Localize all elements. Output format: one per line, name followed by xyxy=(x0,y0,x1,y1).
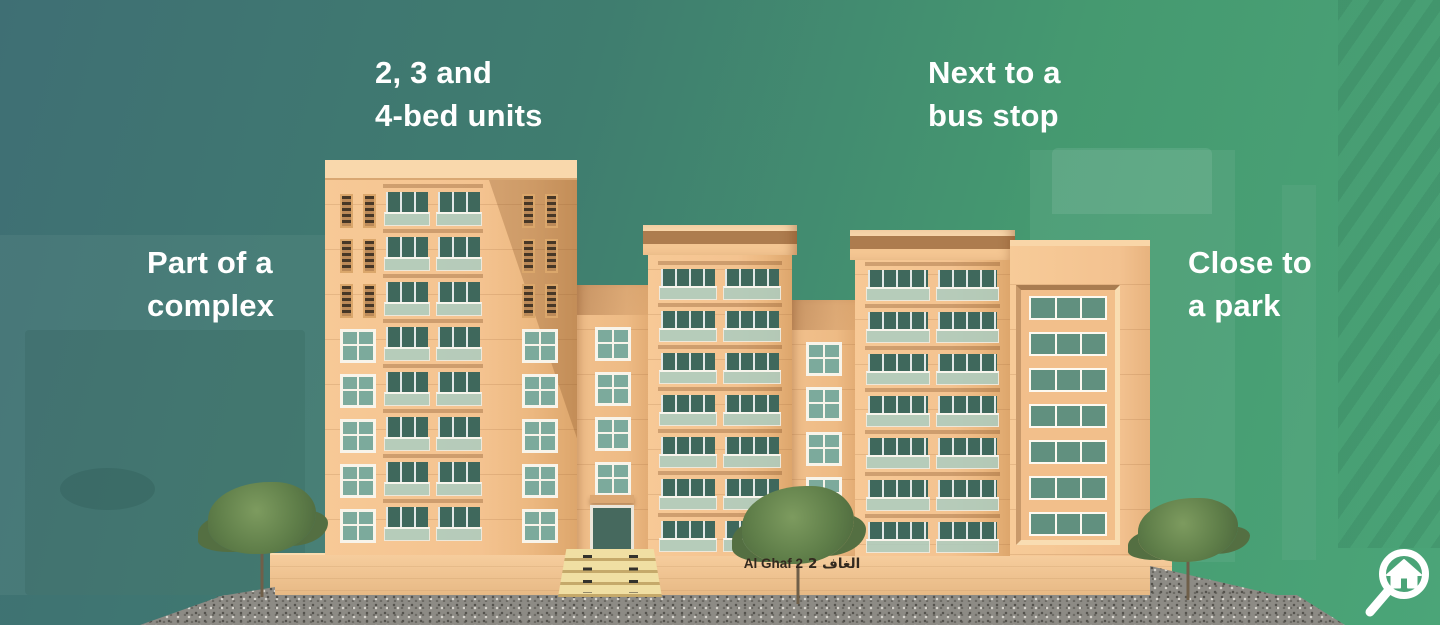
balcony-railing xyxy=(936,329,1000,343)
balcony-glazing xyxy=(438,507,480,527)
window xyxy=(595,327,631,361)
balcony-glazing xyxy=(868,396,928,413)
balcony-glazing xyxy=(386,462,428,482)
window-row xyxy=(593,366,633,411)
balcony-railing xyxy=(723,454,781,468)
window-row xyxy=(804,426,844,471)
balcony xyxy=(866,437,930,470)
window-row xyxy=(517,368,563,413)
balcony xyxy=(866,311,930,344)
window-row xyxy=(517,503,563,548)
feature-bus-stop-label: Next to a bus stop xyxy=(928,52,1061,138)
balcony-glazing xyxy=(938,354,998,371)
balcony-glazing xyxy=(386,327,428,347)
wing-cast-shadow xyxy=(792,300,855,330)
balcony-glazing xyxy=(938,522,998,539)
slatted-window xyxy=(363,194,376,228)
strip-window xyxy=(1029,476,1107,500)
window-row xyxy=(335,323,381,368)
wing-cast-shadow xyxy=(577,285,648,315)
strip-window xyxy=(1029,440,1107,464)
slatted-window xyxy=(340,284,353,318)
window-row xyxy=(517,458,563,503)
balcony-floor xyxy=(658,387,782,429)
connecting-wing-left xyxy=(577,285,648,555)
strip-window xyxy=(1029,404,1107,428)
balcony xyxy=(384,461,430,497)
balcony-railing xyxy=(936,371,1000,385)
balcony-glazing xyxy=(438,462,480,482)
balcony-railing xyxy=(723,370,781,384)
balcony xyxy=(659,310,717,343)
balcony-railing xyxy=(723,328,781,342)
balcony-railing xyxy=(436,257,482,271)
window xyxy=(806,342,842,376)
balcony-railing xyxy=(436,437,482,451)
balcony xyxy=(936,311,1000,344)
balcony-railing xyxy=(659,412,717,426)
balcony-glazing xyxy=(938,480,998,497)
balcony-railing xyxy=(436,527,482,541)
window-row xyxy=(593,411,633,456)
strip-window-row xyxy=(1021,434,1115,470)
balcony-floor xyxy=(658,303,782,345)
balcony xyxy=(936,395,1000,428)
balcony xyxy=(866,521,930,554)
balcony xyxy=(866,353,930,386)
balcony-glazing xyxy=(661,437,715,454)
balcony xyxy=(866,269,930,302)
balcony-glazing xyxy=(438,237,480,257)
strip-window xyxy=(1029,368,1107,392)
balcony-floor xyxy=(383,499,483,544)
balcony-floor xyxy=(383,409,483,454)
window xyxy=(340,374,376,408)
balcony-floor xyxy=(658,345,782,387)
balcony xyxy=(936,353,1000,386)
ghost-chevron-tower-silhouette xyxy=(1338,0,1440,548)
slatted-window-pair xyxy=(335,233,381,278)
infographic-scene: 2, 3 and 4-bed units Next to a bus stop … xyxy=(0,0,1440,625)
balcony xyxy=(436,416,482,452)
window-row xyxy=(335,413,381,458)
balcony-railing xyxy=(866,371,930,385)
balcony-railing xyxy=(384,212,430,226)
building-entrance xyxy=(590,495,634,555)
balcony xyxy=(436,461,482,497)
balcony-glazing xyxy=(661,395,715,412)
flat-section-parapet xyxy=(1010,240,1150,246)
slatted-window xyxy=(340,194,353,228)
window xyxy=(340,329,376,363)
window xyxy=(522,464,558,498)
balcony xyxy=(936,269,1000,302)
balcony xyxy=(384,191,430,227)
balcony-floor xyxy=(383,184,483,229)
balcony xyxy=(723,268,781,301)
balcony xyxy=(384,326,430,362)
balcony-railing xyxy=(436,392,482,406)
feature-complex-label: Part of a complex xyxy=(147,242,274,328)
balcony xyxy=(384,236,430,272)
balcony-railing xyxy=(384,437,430,451)
balcony-glazing xyxy=(386,372,428,392)
balcony-glazing xyxy=(868,522,928,539)
balcony-floor xyxy=(383,364,483,409)
balcony-glazing xyxy=(725,437,779,454)
balcony-glazing xyxy=(725,311,779,328)
tree-canopy xyxy=(1138,498,1238,562)
strip-window-row xyxy=(1021,398,1115,434)
balcony-floor xyxy=(658,429,782,471)
window xyxy=(340,464,376,498)
magnifier-house-logo-icon xyxy=(1360,546,1436,624)
window-row xyxy=(335,368,381,413)
strip-window-row xyxy=(1021,362,1115,398)
strip-window-row xyxy=(1021,470,1115,506)
balcony-glazing xyxy=(938,396,998,413)
balcony-railing xyxy=(384,257,430,271)
tree-middle xyxy=(742,486,854,606)
balcony-glazing xyxy=(386,282,428,302)
building-name-label: Al Ghaf 2الغاف 2 xyxy=(712,556,892,572)
slatted-window xyxy=(363,239,376,273)
balcony-glazing xyxy=(386,192,428,212)
balcony-glazing xyxy=(438,372,480,392)
balcony xyxy=(659,436,717,469)
balcony-glazing xyxy=(661,479,715,496)
balcony-railing xyxy=(659,454,717,468)
balcony-railing xyxy=(866,455,930,469)
balcony-railing xyxy=(659,286,717,300)
balcony-railing xyxy=(936,455,1000,469)
middle-tower-parapet-cap xyxy=(643,225,797,255)
balcony-railing xyxy=(866,497,930,511)
balcony xyxy=(659,268,717,301)
entrance-awning xyxy=(590,495,634,503)
balcony xyxy=(436,281,482,317)
balcony-railing xyxy=(436,347,482,361)
tree-canopy xyxy=(742,486,854,564)
balcony xyxy=(384,371,430,407)
balcony xyxy=(436,371,482,407)
balcony xyxy=(384,416,430,452)
left-tower-window-column-left xyxy=(335,188,381,548)
balcony xyxy=(936,521,1000,554)
balcony-railing xyxy=(936,497,1000,511)
strip-window-row xyxy=(1021,326,1115,362)
window xyxy=(340,419,376,453)
right-tower-balcony-section xyxy=(855,230,1010,556)
window xyxy=(340,509,376,543)
balcony-glazing xyxy=(438,192,480,212)
balcony xyxy=(936,479,1000,512)
window-row xyxy=(517,323,563,368)
balcony-railing xyxy=(436,212,482,226)
window xyxy=(806,387,842,421)
balcony-railing xyxy=(659,496,717,510)
slatted-window-pair xyxy=(335,278,381,323)
right-tower-flat-section xyxy=(1010,240,1150,556)
balcony-glazing xyxy=(438,417,480,437)
slatted-window xyxy=(340,239,353,273)
balcony xyxy=(384,281,430,317)
balcony-floor xyxy=(383,454,483,499)
balcony-railing xyxy=(723,412,781,426)
strip-window-row xyxy=(1021,290,1115,326)
balcony-glazing xyxy=(868,312,928,329)
balcony-floor xyxy=(865,388,1000,430)
balcony-railing xyxy=(936,413,1000,427)
window-row xyxy=(804,381,844,426)
left-tower xyxy=(325,160,577,555)
window xyxy=(595,372,631,406)
balcony-glazing xyxy=(938,312,998,329)
balcony-railing xyxy=(936,287,1000,301)
balcony xyxy=(659,520,717,553)
balcony-glazing xyxy=(661,311,715,328)
balcony-railing xyxy=(384,302,430,316)
window-row xyxy=(593,321,633,366)
strip-window xyxy=(1029,332,1107,356)
slatted-window xyxy=(522,194,535,228)
left-tower-cornice xyxy=(325,160,577,180)
balcony xyxy=(723,310,781,343)
building-name-arabic: الغاف 2 xyxy=(808,556,860,572)
balcony-railing xyxy=(659,538,717,552)
balcony-railing xyxy=(866,539,930,553)
balcony-railing xyxy=(866,287,930,301)
balcony-glazing xyxy=(661,269,715,286)
balcony-glazing xyxy=(386,507,428,527)
slatted-window-pair xyxy=(517,188,563,233)
slatted-window xyxy=(522,239,535,273)
balcony-glazing xyxy=(725,395,779,412)
feature-park-label: Close to a park xyxy=(1188,242,1312,328)
balcony xyxy=(659,352,717,385)
balcony-railing xyxy=(659,370,717,384)
balcony-glazing xyxy=(438,282,480,302)
balcony-railing xyxy=(866,329,930,343)
window-row xyxy=(335,503,381,548)
balcony xyxy=(436,191,482,227)
balcony-floor xyxy=(865,262,1000,304)
balcony-railing xyxy=(384,392,430,406)
balcony-glazing xyxy=(938,438,998,455)
slatted-window-pair xyxy=(517,278,563,323)
slatted-window xyxy=(545,194,558,228)
window-row xyxy=(517,413,563,458)
tree-right xyxy=(1138,498,1238,602)
balcony-floor xyxy=(865,514,1000,556)
slatted-window xyxy=(545,239,558,273)
window xyxy=(522,419,558,453)
window xyxy=(522,329,558,363)
balcony-floor xyxy=(865,304,1000,346)
balcony-glazing xyxy=(386,417,428,437)
slatted-window xyxy=(363,284,376,318)
balcony-glazing xyxy=(938,270,998,287)
balcony-railing xyxy=(436,482,482,496)
balcony-railing xyxy=(936,539,1000,553)
balcony-railing xyxy=(384,527,430,541)
window xyxy=(806,432,842,466)
balcony xyxy=(866,479,930,512)
slatted-window xyxy=(522,284,535,318)
tree-left xyxy=(208,482,316,602)
balcony-glazing xyxy=(725,353,779,370)
ghost-palm-silhouette xyxy=(60,468,155,510)
balcony xyxy=(723,436,781,469)
balcony-floor xyxy=(658,261,782,303)
balcony-railing xyxy=(384,482,430,496)
balcony xyxy=(723,352,781,385)
balcony xyxy=(436,326,482,362)
balcony-floor xyxy=(383,229,483,274)
balcony-railing xyxy=(659,328,717,342)
balcony-railing xyxy=(723,286,781,300)
balcony-floor xyxy=(865,346,1000,388)
balcony xyxy=(659,394,717,427)
recessed-window-panel xyxy=(1016,285,1120,545)
ghost-skyscraper-crown xyxy=(1052,148,1212,214)
window-row xyxy=(335,458,381,503)
balcony-floor xyxy=(865,430,1000,472)
balcony-railing xyxy=(384,347,430,361)
feature-bed-units-label: 2, 3 and 4-bed units xyxy=(375,52,543,138)
left-tower-balconies xyxy=(383,184,483,544)
wing-window-column xyxy=(593,321,633,501)
balcony-glazing xyxy=(661,353,715,370)
balcony xyxy=(659,478,717,511)
balcony-glazing xyxy=(725,269,779,286)
balcony xyxy=(866,395,930,428)
strip-window-row xyxy=(1021,506,1115,542)
balcony xyxy=(436,236,482,272)
slatted-window-pair xyxy=(335,188,381,233)
slatted-window xyxy=(545,284,558,318)
window-row xyxy=(804,336,844,381)
balcony xyxy=(723,394,781,427)
slatted-window-pair xyxy=(517,233,563,278)
balcony-floor xyxy=(383,319,483,364)
balcony-glazing xyxy=(868,480,928,497)
balcony-glazing xyxy=(868,354,928,371)
balcony-glazing xyxy=(868,438,928,455)
balcony-glazing xyxy=(438,327,480,347)
window xyxy=(522,374,558,408)
balcony-railing xyxy=(866,413,930,427)
balcony xyxy=(384,506,430,542)
strip-window xyxy=(1029,512,1107,536)
balcony-railing xyxy=(436,302,482,316)
left-tower-window-column-right xyxy=(517,188,563,548)
window xyxy=(522,509,558,543)
balcony-floor xyxy=(865,472,1000,514)
balcony-glazing xyxy=(386,237,428,257)
balcony-glazing xyxy=(868,270,928,287)
balcony xyxy=(436,506,482,542)
entrance-stairs xyxy=(558,549,662,597)
balcony-glazing xyxy=(661,521,715,538)
window xyxy=(595,462,631,496)
window xyxy=(595,417,631,451)
right-tower-parapet-cap xyxy=(850,230,1015,260)
building-name-english: Al Ghaf 2 xyxy=(744,556,803,571)
right-tower-balconies xyxy=(865,262,1000,556)
balcony xyxy=(936,437,1000,470)
balcony-floor xyxy=(383,274,483,319)
tree-canopy xyxy=(208,482,316,554)
strip-window xyxy=(1029,296,1107,320)
